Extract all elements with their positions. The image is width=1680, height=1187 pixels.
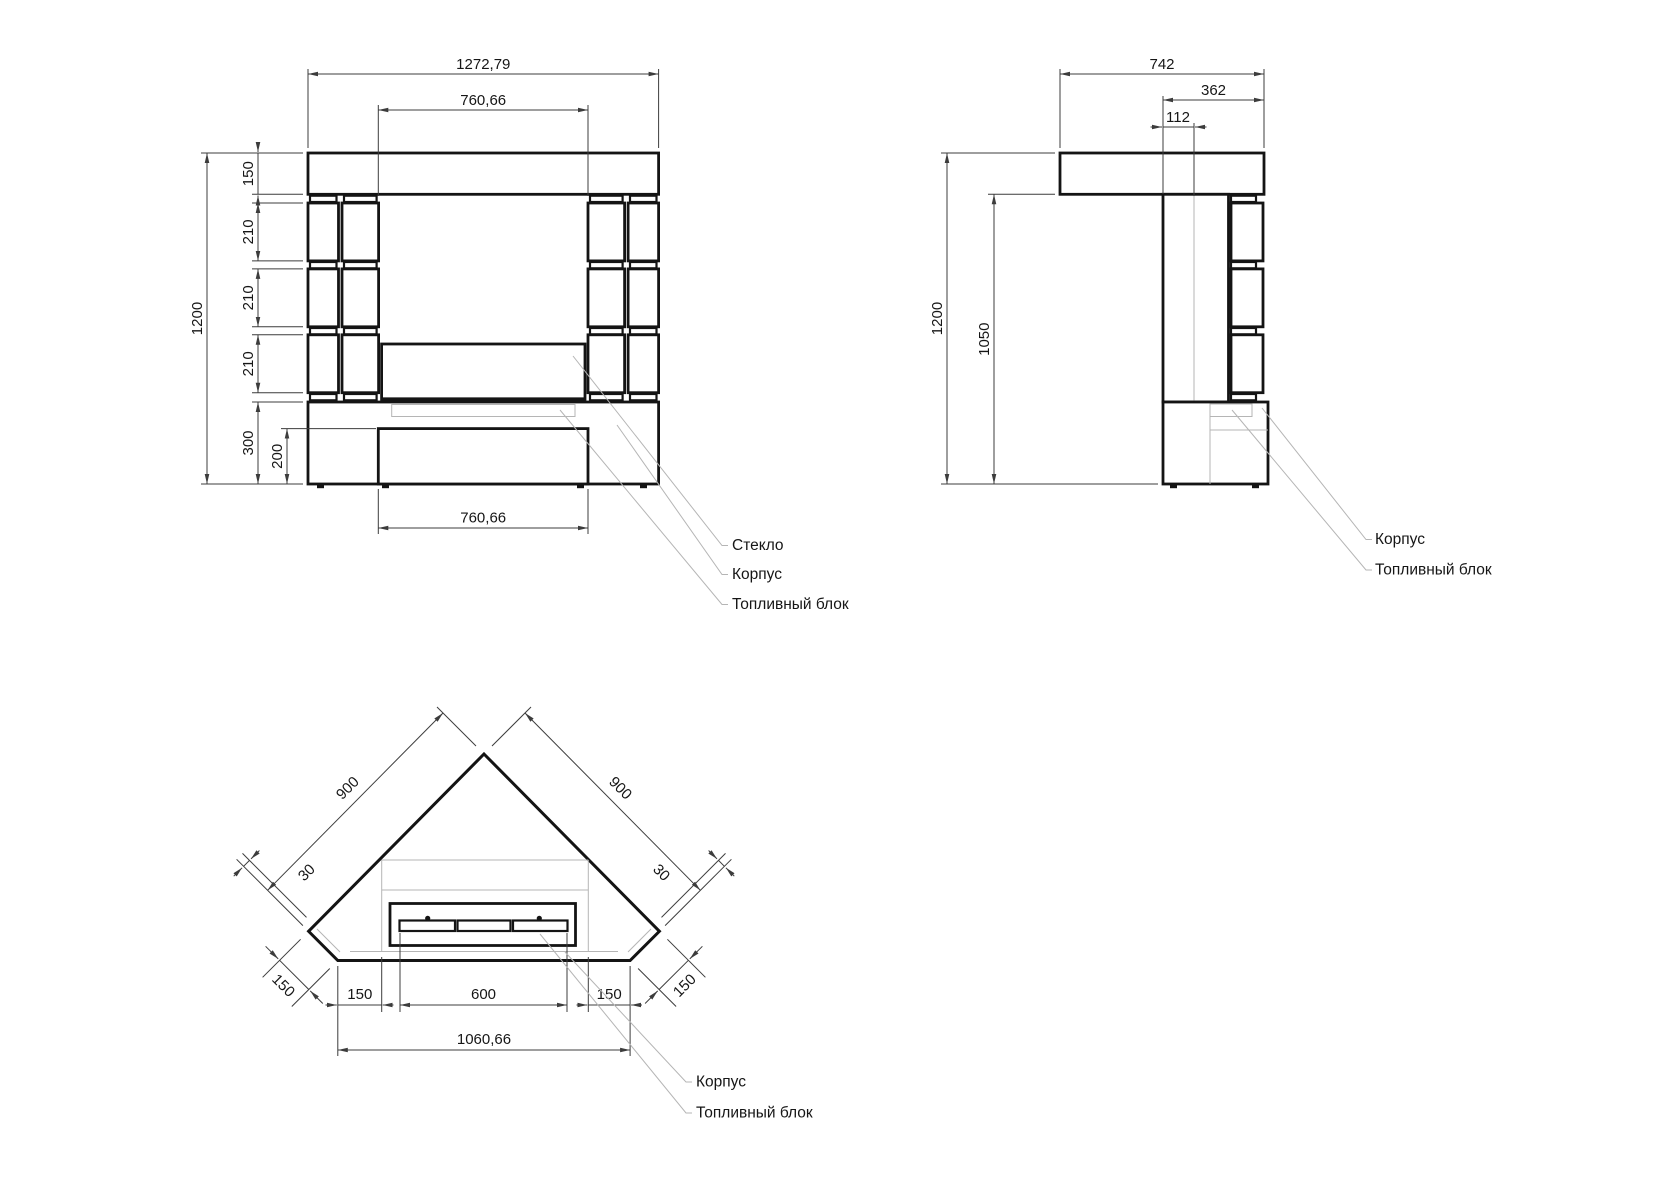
- dim-front-mantel-height: 150: [240, 161, 257, 186]
- fireplace-technical-drawing: 1272,79 760,66 1200 150 210 210 210 300 …: [0, 0, 1680, 1187]
- side-block: [1231, 335, 1263, 393]
- burner-knob: [537, 916, 542, 921]
- dim-front-bottom-width: 760,66: [460, 510, 506, 527]
- side-thin-block: [1231, 262, 1256, 268]
- dim-side-total-height: 1200: [929, 302, 946, 335]
- dim-front-total-height: 1200: [189, 302, 206, 335]
- label-side-fuel: Топливный блок: [1375, 562, 1492, 579]
- front-base-panel: [378, 429, 588, 484]
- front-outline: [308, 153, 659, 488]
- front-block: [588, 203, 625, 261]
- top-view: 900 900 30 30 150 150 150 600 150 1060,6…: [234, 707, 813, 1122]
- front-block: [628, 335, 659, 393]
- dim-side-offset: 112: [1166, 109, 1190, 126]
- side-outline: [1060, 153, 1268, 488]
- front-block: [628, 269, 659, 327]
- dim-top-bottom-width: 1060,66: [457, 1031, 511, 1048]
- side-thin-block: [1231, 394, 1256, 400]
- dim-front-block2: 210: [240, 285, 257, 310]
- front-block: [308, 335, 339, 393]
- dim-top-offset-right: 30: [649, 861, 673, 885]
- front-block: [628, 203, 659, 261]
- dim-front-overall-width: 1272,79: [456, 56, 510, 73]
- side-mantel: [1060, 153, 1264, 194]
- dim-side-body-height: 1050: [976, 323, 993, 356]
- front-mantel: [308, 153, 659, 194]
- side-thin-block: [1231, 328, 1256, 334]
- dim-side-body-depth: 362: [1201, 82, 1226, 99]
- side-block: [1231, 203, 1263, 261]
- front-block: [342, 269, 379, 327]
- front-view: 1272,79 760,66 1200 150 210 210 210 300 …: [189, 56, 849, 613]
- label-side-body: Корпус: [1375, 531, 1425, 548]
- dim-top-chamfer-left: 150: [268, 971, 298, 1001]
- dim-front-opening-width: 760,66: [460, 92, 506, 109]
- leader-side-body: [1262, 408, 1372, 540]
- dim-front-base-height: 300: [240, 430, 257, 455]
- front-block: [308, 269, 339, 327]
- top-labels: Корпус Топливный блок: [696, 1074, 813, 1122]
- burner-segment: [400, 921, 456, 932]
- dim-top-inset-left: 150: [347, 986, 372, 1003]
- label-front-glass: Стекло: [732, 537, 784, 554]
- dim-top-inset-right: 150: [597, 986, 622, 1003]
- dim-side-depth: 742: [1149, 56, 1174, 73]
- dim-front-block1: 210: [240, 219, 257, 244]
- side-labels: Корпус Топливный блок: [1375, 531, 1492, 579]
- burner-knob: [425, 916, 430, 921]
- label-front-fuel: Топливный блок: [732, 596, 849, 613]
- label-top-fuel: Топливный блок: [696, 1105, 813, 1122]
- dim-top-offset-left: 30: [295, 861, 319, 885]
- burner-segment: [513, 921, 568, 932]
- drawing-sheet: 1272,79 760,66 1200 150 210 210 210 300 …: [0, 0, 1680, 1187]
- dim-top-burner: 600: [471, 986, 496, 1003]
- front-block: [588, 269, 625, 327]
- side-thin-block: [1231, 196, 1256, 202]
- dim-front-panel-height: 200: [269, 444, 286, 469]
- front-block: [588, 335, 625, 393]
- side-view: 742 362 112 1200 1050 Корпус Топливный б…: [929, 56, 1492, 579]
- front-block: [342, 203, 379, 261]
- side-body-column: [1163, 194, 1229, 402]
- burner-segment: [458, 921, 511, 932]
- front-labels: Стекло Корпус Топливный блок: [732, 537, 849, 613]
- front-block: [342, 335, 379, 393]
- side-block: [1231, 269, 1263, 327]
- dim-top-chamfer-right: 150: [670, 971, 700, 1001]
- leader-top-body: [565, 952, 692, 1082]
- label-top-body: Корпус: [696, 1074, 746, 1091]
- front-block: [308, 203, 339, 261]
- front-glass-panel: [382, 344, 585, 400]
- label-front-body: Корпус: [732, 566, 782, 583]
- dim-front-block3: 210: [240, 351, 257, 376]
